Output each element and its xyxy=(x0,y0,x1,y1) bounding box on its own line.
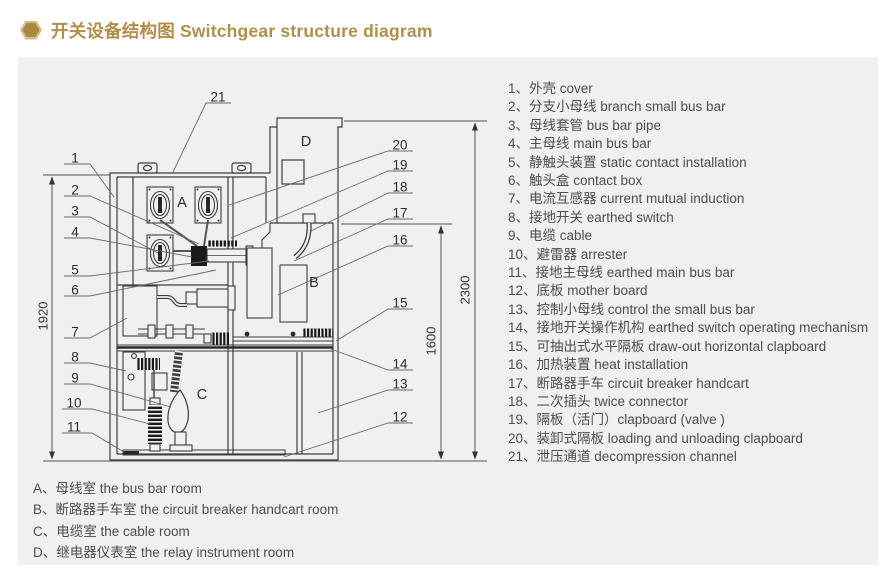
legend-item-5: 5、静触头装置 static contact installation xyxy=(508,154,884,172)
legend-item-14: 14、接地开关操作机构 earthed switch operating mec… xyxy=(508,319,884,337)
callout-14: 14 xyxy=(392,357,408,372)
bushing-top-left xyxy=(147,187,173,223)
legend-item-21: 21、泄压通道 decompression channel xyxy=(508,448,884,466)
lifting-lugs xyxy=(138,163,251,173)
dimension-2300: 2300 xyxy=(458,276,473,305)
page: 开关设备结构图 Switchgear structure diagram 192… xyxy=(0,0,896,587)
callout-21: 21 xyxy=(210,90,225,105)
rooms-legend-b: B、断路器手车室 the circuit breaker handcart ro… xyxy=(33,499,463,520)
callout-9: 9 xyxy=(71,371,79,386)
legend-item-10: 10、避雷器 arrester xyxy=(508,246,884,264)
legend-item-13: 13、控制小母线 control the small bus bar xyxy=(508,301,884,319)
legend-item-3: 3、母线套管 bus bar pipe xyxy=(508,117,884,135)
callout-19: 19 xyxy=(392,158,407,173)
legend-item-18: 18、二次插头 twice connector xyxy=(508,393,884,411)
secondary-plug xyxy=(303,214,315,223)
room-b-handcart xyxy=(247,214,315,322)
legend-item-19: 19、隔板（活门）clapboard (valve ) xyxy=(508,411,884,429)
callout-2: 2 xyxy=(71,183,79,198)
rooms-legend-a: A、母线室 the bus bar room xyxy=(33,478,463,499)
room-letter-a: A xyxy=(177,195,187,211)
room-letter-b: B xyxy=(309,275,319,291)
callout-5: 5 xyxy=(71,263,79,278)
room-letter-d: D xyxy=(301,134,311,150)
dimension-1920: 1920 xyxy=(36,302,51,331)
legend-item-12: 12、底板 mother board xyxy=(508,282,884,300)
legend-item-7: 7、电流互感器 current mutual induction xyxy=(508,190,884,208)
callout-15: 15 xyxy=(392,296,407,311)
page-header: 开关设备结构图 Switchgear structure diagram xyxy=(20,18,433,42)
legend-item-4: 4、主母线 main bus bar xyxy=(508,135,884,153)
callout-6: 6 xyxy=(71,283,79,298)
legend-item-1: 1、外壳 cover xyxy=(508,80,884,98)
callout-1: 1 xyxy=(71,151,79,166)
callout-20: 20 xyxy=(392,138,407,153)
legend-item-9: 9、电缆 cable xyxy=(508,227,884,245)
callout-13: 13 xyxy=(392,377,407,392)
rooms-legend: A、母线室 the bus bar room B、断路器手车室 the circ… xyxy=(33,478,463,564)
earthed-main-bus xyxy=(123,451,139,455)
legend-item-17: 17、断路器手车 circuit breaker handcart xyxy=(508,375,884,393)
rooms-legend-d: D、继电器仪表室 the relay instrument room xyxy=(33,542,463,563)
heater-bands xyxy=(211,333,333,339)
legend-item-2: 2、分支小母线 branch small bus bar xyxy=(508,98,884,116)
callout-12: 12 xyxy=(392,410,407,425)
callout-16: 16 xyxy=(392,233,407,248)
callout-11: 11 xyxy=(67,420,81,435)
legend-item-6: 6、触头盒 contact box xyxy=(508,172,884,190)
hexagon-bullet-inner xyxy=(23,23,40,37)
page-title: 开关设备结构图 Switchgear structure diagram xyxy=(51,18,433,43)
cable-termination xyxy=(168,351,192,451)
callout-8: 8 xyxy=(71,350,79,365)
rooms-legend-c: C、电缆室 the cable room xyxy=(33,521,463,542)
room-letter-c: C xyxy=(197,387,207,403)
legend-item-15: 15、可抽出式水平隔板 draw-out horizontal clapboar… xyxy=(508,338,884,356)
legend-item-20: 20、装卸式隔板 loading and unloading clapboard xyxy=(508,430,884,448)
callout-17: 17 xyxy=(392,206,407,221)
dimension-1600: 1600 xyxy=(424,327,439,356)
bushing-top-right xyxy=(195,187,221,223)
callout-10: 10 xyxy=(66,396,81,411)
callout-18: 18 xyxy=(392,180,407,195)
legend-item-8: 8、接地开关 earthed switch xyxy=(508,209,884,227)
legend-item-16: 16、加热装置 heat installation xyxy=(508,356,884,374)
room-c-components xyxy=(123,351,192,451)
callout-7: 7 xyxy=(71,325,79,340)
callout-leaders xyxy=(62,103,413,457)
callout-3: 3 xyxy=(71,204,79,219)
callout-4: 4 xyxy=(71,225,79,240)
parts-legend: 1、外壳 cover 2、分支小母线 branch small bus bar … xyxy=(508,80,884,467)
arrester xyxy=(150,398,160,451)
hexagon-bullet-icon xyxy=(20,21,42,40)
legend-item-11: 11、接地主母线 earthed main bus bar xyxy=(508,264,884,282)
